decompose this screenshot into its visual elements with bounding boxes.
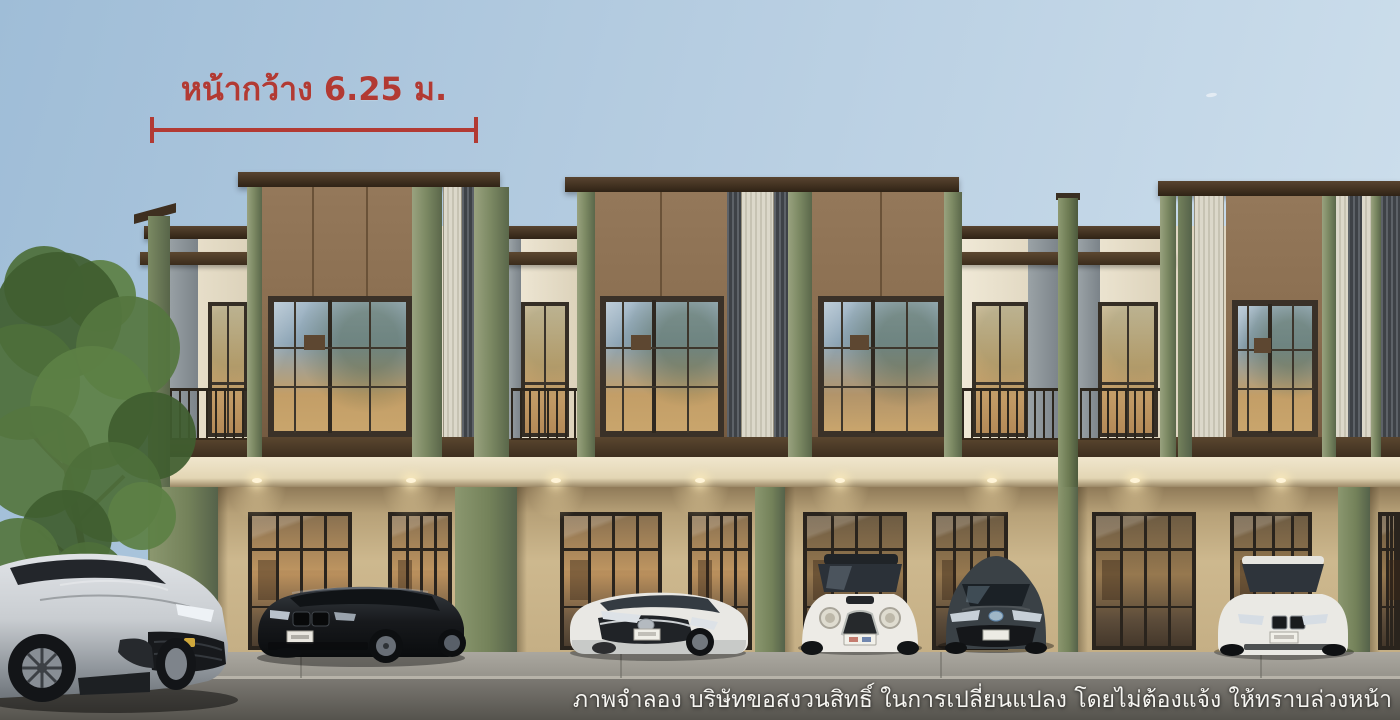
disclaimer-text: ภาพจำลอง บริษัทขอสงวนสิทธิ์ ในการเปลี่ยน… xyxy=(573,682,1392,718)
car-dark-crossover xyxy=(938,556,1054,654)
dimension-tick-right xyxy=(474,117,478,143)
car-black-sedan xyxy=(257,587,466,667)
car-white-mini-hatch xyxy=(798,554,922,655)
car-white-compact-sedan xyxy=(570,593,748,661)
dimension-label: หน้ากว้าง 6.25 ม. xyxy=(150,72,478,107)
architectural-rendering: หน้ากว้าง 6.25 ม. ภาพจำลอง บริษัทขอสงวนส… xyxy=(0,0,1400,720)
dimension-bar xyxy=(150,128,478,132)
dimension-line xyxy=(150,117,478,143)
dimension-annotation: หน้ากว้าง 6.25 ม. xyxy=(150,72,478,143)
car-silver-suv xyxy=(0,554,238,713)
car-white-sedan xyxy=(1214,556,1354,660)
